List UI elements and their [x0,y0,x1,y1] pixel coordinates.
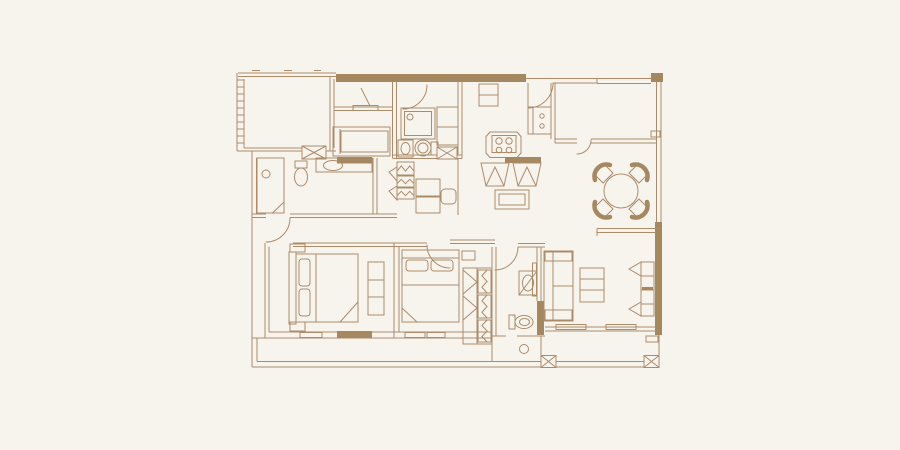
master-bed-throw [340,302,358,322]
stove [492,136,516,153]
toilet2-bowl [415,140,431,156]
sofa-arm-a [545,252,572,261]
wardrobe2-rail-b-glyph [482,295,487,318]
toilet3-bowl [515,316,533,329]
burner-d [506,147,512,153]
desk-lower [416,197,440,213]
closet-rail-c-glyph [397,191,414,195]
bath2-door-arc [403,85,427,109]
toilet1-tank [295,161,307,168]
toilet3-seat [520,319,530,326]
master-nightstand-b [290,322,305,331]
column-topright [651,73,663,82]
toilet1-bowl [295,168,308,186]
burner-a [496,138,502,144]
bath3-door-arc [495,247,518,270]
den-window [353,106,378,111]
wardrobe2-rail-c-glyph [482,320,487,342]
closet-rail-b-glyph [397,179,414,183]
den-daybed-cushion [341,131,388,152]
floor-plan [0,0,900,450]
desk-chair [441,189,456,204]
bath3-wall [537,301,544,335]
floorplan-canvas [0,0,900,450]
kitchen-chair-left-frame [486,167,504,186]
coffee-table [580,268,604,302]
sink2-bowl [401,143,410,155]
sofa-arm-b [545,310,572,320]
right-window-sill [651,131,660,137]
den-window-diagonal [361,88,370,106]
tv-accent [642,287,653,290]
shower2-stall [401,108,435,139]
bath2-cabinet [437,107,458,145]
burner-b [506,138,512,144]
kitchen-chair-right-frame [518,167,536,186]
wardrobe2-door-b [463,296,477,320]
master-bottom-wall [337,331,372,338]
closet-rail-a-glyph [397,166,414,171]
shower1-door [272,202,284,214]
toilet2-seat [418,143,428,153]
vanity1-counter [337,157,372,164]
closet-door-a [389,167,397,181]
master-pillow-b [299,289,310,316]
balcony-sill [646,336,658,342]
shower2-tray [405,112,432,136]
closet-door-b [389,186,397,200]
shower1-drain [262,170,270,178]
wardrobe2-door-a [463,270,477,294]
wardrobe2-rail-a-glyph [482,270,487,293]
dining-door-arc [577,140,591,154]
kitchen-knob-a [540,114,544,118]
kitchen-table [495,190,529,209]
kitchen-counter-accent [505,157,541,163]
bed2-throw [402,308,417,322]
top-wall [336,74,526,82]
bath1-door-arc [266,218,290,242]
tv-door-a [629,262,641,276]
bed2-pillow-a [406,260,428,271]
shower3-drain [520,345,529,354]
master-window-sill [300,333,322,338]
right-wall [655,222,662,335]
bed2-door-arc [427,245,450,268]
bed2-nightstand [462,251,475,260]
entry-door-arc [528,83,553,108]
master-nightstand-a [290,244,305,252]
desk-upper [416,179,440,196]
kitchen-cabinet [528,107,551,134]
shower1 [257,158,284,213]
burner-c [496,147,502,153]
toilet3-tank [509,315,515,329]
bed2-window-sill-a [405,333,425,338]
master-bed-headboard [289,252,296,324]
master-shelf [368,262,384,315]
vanity1-sink [324,161,343,171]
tv-door-b [629,302,641,316]
kitchen-knob-b [540,124,544,128]
master-pillow-a [299,259,310,286]
shower2-head [407,114,413,120]
kitchen-table-inner [499,194,525,205]
dining-table [604,174,638,208]
bed2-window-sill-b [427,333,445,338]
